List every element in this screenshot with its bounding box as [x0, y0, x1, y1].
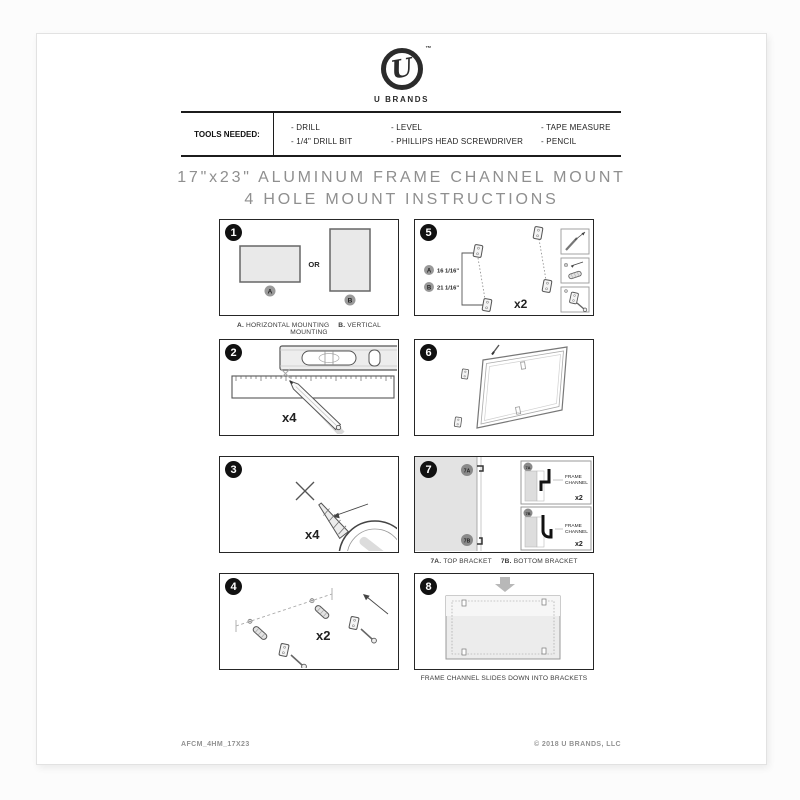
step-3-panel: 3 x4 — [219, 456, 399, 553]
instruction-sheet: U ™ U BRANDS TOOLS NEEDED: - DRILL - 1/4… — [36, 33, 767, 765]
step-number: 7 — [425, 464, 431, 476]
screw-icon — [361, 629, 372, 639]
bubble-level-icon — [280, 346, 397, 370]
mounting-bracket-icon — [473, 244, 483, 257]
quantity-label: x2 — [316, 628, 330, 643]
quantity-label: x4 — [282, 410, 297, 425]
drill-bit-icon — [319, 503, 349, 538]
direction-arrow-icon — [332, 504, 368, 518]
tools-needed-table: TOOLS NEEDED: - DRILL - 1/4" DRILL BIT -… — [181, 111, 621, 157]
svg-text:FRAME: FRAME — [565, 474, 582, 480]
title-line-2: 4 HOLE MOUNT INSTRUCTIONS — [37, 189, 766, 211]
down-arrow-icon — [495, 577, 515, 592]
spacing-guide-line — [539, 239, 546, 280]
step-6-illustration — [415, 340, 592, 434]
svg-text:7B: 7B — [525, 511, 530, 516]
step-7-number-badge: 7 — [420, 461, 437, 478]
detail-box-7b: 7B FRAME CHANNEL x2 — [521, 507, 591, 550]
svg-text:B: B — [427, 285, 432, 291]
step-number: 2 — [230, 347, 236, 359]
step-8-illustration — [415, 574, 592, 668]
tools-needed-label: TOOLS NEEDED: — [181, 130, 273, 139]
svg-text:x2: x2 — [575, 495, 583, 502]
step-5-number-badge: 5 — [420, 224, 437, 241]
svg-text:7A: 7A — [464, 468, 471, 474]
trademark-symbol: ™ — [426, 46, 432, 52]
step-5-panel: 5 A 16 1/16" B 21 1/16" x2 — [414, 219, 594, 316]
svg-text:CHANNEL: CHANNEL — [565, 480, 588, 486]
corner-bracket-icon — [462, 649, 466, 655]
step-number: 1 — [230, 227, 236, 239]
dimension-a-label: A 16 1/16" — [424, 265, 459, 275]
step-8-caption: FRAME CHANNEL SLIDES DOWN INTO BRACKETS — [414, 675, 594, 682]
brand-name: U BRANDS — [37, 95, 766, 104]
step-7-caption: 7A.TOP BRACKET7B.BOTTOM BRACKET — [414, 558, 594, 565]
quantity-label: x2 — [514, 297, 528, 311]
svg-text:7B: 7B — [464, 538, 471, 544]
ruler-icon — [232, 376, 394, 398]
direction-arrow-icon — [363, 594, 388, 614]
tool-item: - LEVEL — [391, 123, 541, 132]
caption-key: A. — [237, 322, 244, 329]
detail-box-7a: 7A FRAME CHANNEL x2 — [521, 461, 591, 504]
dimension-b-label: B 21 1/16" — [424, 282, 459, 292]
step-8-panel: 8 — [414, 573, 594, 670]
frame-icon — [477, 347, 567, 428]
step-1-panel: 1 A OR B — [219, 219, 399, 316]
step-6-panel: 6 — [414, 339, 594, 436]
mounting-bracket-icon — [542, 279, 552, 292]
detail-steps-column — [561, 229, 589, 312]
caption-key: 7B. — [501, 558, 512, 565]
copyright-text: © 2018 U BRANDS, LLC — [534, 741, 621, 748]
step-4-illustration: x2 — [220, 574, 397, 668]
step-5-illustration: A 16 1/16" B 21 1/16" x2 — [415, 220, 592, 314]
step-4-panel: 4 — [219, 573, 399, 670]
spacing-guide-line — [478, 258, 485, 299]
mounting-bracket-icon — [533, 226, 543, 239]
step-number: 6 — [425, 347, 431, 359]
caption-text: FRAME CHANNEL SLIDES DOWN INTO BRACKETS — [421, 675, 588, 682]
step-2-number-badge: 2 — [225, 344, 242, 361]
tool-item: - TAPE MEASURE — [541, 123, 621, 132]
step-number: 5 — [425, 227, 431, 239]
mounting-bracket-icon — [461, 369, 469, 379]
svg-text:A: A — [427, 268, 432, 274]
step-1-number-badge: 1 — [225, 224, 242, 241]
marker-b-icon: B — [345, 295, 356, 306]
x-mark-icon — [296, 482, 314, 500]
step-8-number-badge: 8 — [420, 578, 437, 595]
step-3-number-badge: 3 — [225, 461, 242, 478]
step-6-number-badge: 6 — [420, 344, 437, 361]
marker-a-icon: A — [265, 286, 276, 297]
step-number: 3 — [230, 464, 236, 476]
or-label: OR — [308, 260, 320, 269]
screw-icon — [291, 655, 302, 665]
tool-item: - PHILLIPS HEAD SCREWDRIVER — [391, 137, 541, 146]
quantity-label: x4 — [305, 527, 320, 542]
step-2-illustration: x4 — [220, 340, 397, 434]
svg-text:A: A — [268, 289, 273, 296]
svg-text:x2: x2 — [575, 541, 583, 548]
frame-icon — [446, 596, 560, 659]
title-line-1: 17"x23" ALUMINUM FRAME CHANNEL MOUNT — [37, 167, 766, 189]
step-7-illustration: 7A 7B 7A FRAME CHANNEL x2 — [415, 457, 592, 551]
top-bracket-icon — [477, 466, 483, 471]
svg-text:7A: 7A — [525, 465, 530, 470]
caption-key: 7A. — [430, 558, 441, 565]
caption-text: HORIZONTAL MOUNTING — [246, 322, 329, 329]
document-code: AFCM_4HM_17X23 — [181, 741, 250, 748]
mounting-bracket-icon — [482, 298, 492, 311]
tool-item: - PENCIL — [541, 137, 621, 146]
screw-mark-icon — [310, 599, 314, 603]
svg-text:21 1/16": 21 1/16" — [437, 286, 459, 292]
caption-key: B. — [338, 322, 345, 329]
step-1-caption: A.HORIZONTAL MOUNTINGB.VERTICAL MOUNTING — [219, 322, 399, 336]
svg-text:FRAME: FRAME — [565, 523, 582, 529]
mounting-bracket-icon — [454, 417, 462, 427]
tool-item: - DRILL — [291, 123, 391, 132]
corner-bracket-icon — [542, 648, 546, 654]
step-4-number-badge: 4 — [225, 578, 242, 595]
vertical-frame-icon — [330, 229, 370, 291]
step-2-panel: 2 — [219, 339, 399, 436]
corner-bracket-icon — [542, 599, 546, 605]
bottom-bracket-icon — [477, 538, 482, 544]
ubrands-logo: U ™ U BRANDS — [37, 48, 766, 104]
drill-chuck-icon — [339, 521, 397, 551]
ubrands-logo-mark-icon: U — [381, 48, 423, 90]
pencil-mark-icon — [492, 345, 499, 355]
step-1-illustration: A OR B — [220, 220, 397, 314]
step-7-panel: 7 7A 7B 7A FRAME — [414, 456, 594, 553]
document-title: 17"x23" ALUMINUM FRAME CHANNEL MOUNT 4 H… — [37, 167, 766, 212]
svg-text:CHANNEL: CHANNEL — [565, 529, 588, 535]
tool-item: - 1/4" DRILL BIT — [291, 137, 391, 146]
corner-bracket-icon — [462, 600, 466, 606]
caption-text: BOTTOM BRACKET — [514, 558, 578, 565]
svg-text:B: B — [348, 298, 353, 305]
logo-letter: U — [389, 54, 415, 82]
dimension-line — [462, 253, 483, 305]
svg-text:16 1/16": 16 1/16" — [437, 269, 459, 275]
step-number: 4 — [230, 581, 236, 593]
caption-text: TOP BRACKET — [443, 558, 492, 565]
wall-anchor-icon — [252, 625, 306, 668]
step-number: 8 — [425, 581, 431, 593]
step-3-illustration: x4 — [220, 457, 397, 551]
screw-mark-icon — [248, 619, 252, 623]
horizontal-frame-icon — [240, 246, 300, 282]
